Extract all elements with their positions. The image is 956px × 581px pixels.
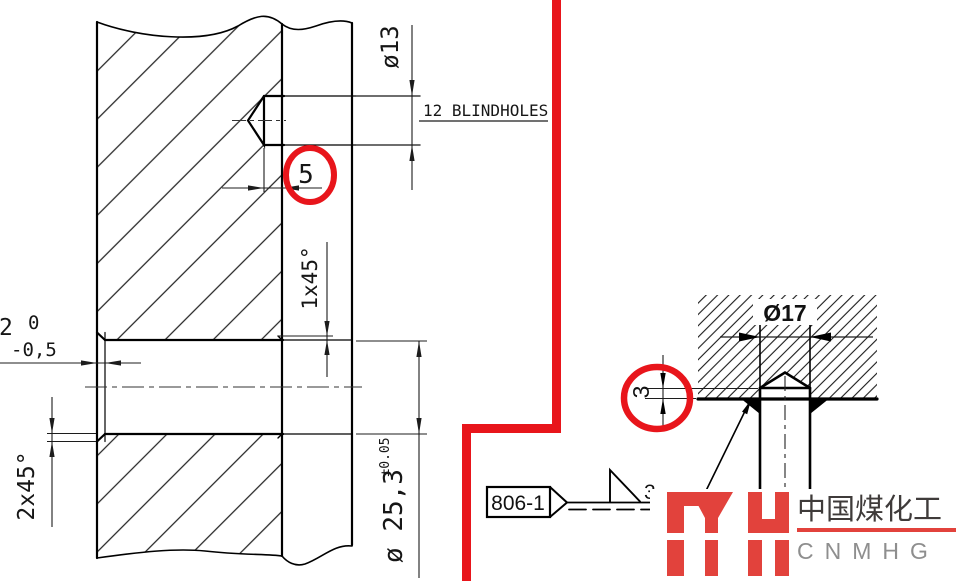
arrowhead [105,360,121,365]
protrusion-height-label: 3 [628,386,654,399]
weld-detail-view: Ø17 3 3 806-1 [487,295,877,517]
engineering-drawing: ø13 12 BLINDHOLES 5 1x45° 2 0 -0, [0,0,956,581]
counterbore-depth-label: 2 [0,315,13,341]
arrowhead [81,360,97,365]
leader-line [700,405,748,503]
arrowhead [409,80,414,96]
tag-pointer [550,487,567,517]
arrowhead [409,145,414,161]
arrowhead [324,340,329,355]
bore-diameter-label: ø 25,3 [379,469,409,563]
arrowhead [416,341,421,357]
fillet-weld-symbol-triangle [610,470,640,502]
watermark-company-en: CNMHG [797,538,939,564]
bore-tolerance-label: ±0.05 [378,437,393,476]
dimension-left-chamfer [47,397,96,527]
arrowhead [416,418,421,434]
hole-diameter-label: ø13 [376,25,404,68]
watermark-underline [797,528,956,532]
arrowhead [49,418,54,434]
blindholes-note-text: 12 BLINDHOLES [423,101,548,120]
blindholes-note: 12 BLINDHOLES [419,101,548,121]
section-hatch [97,16,282,558]
counterbore-tol-upper: 0 [28,312,39,334]
hole-depth-label: 5 [298,160,314,190]
arrowhead [324,321,329,336]
arrowhead [660,399,665,415]
watermark-company-cn: 中国煤化工 [797,493,942,526]
counterbore-tol-lower: -0,5 [11,339,57,361]
detail-diameter-label: Ø17 [763,300,806,326]
left-chamfer-label: 2x45° [14,451,40,520]
arrowhead [49,442,54,458]
fillet-weld-right [810,400,828,415]
right-chamfer-label: 1x45° [298,246,322,309]
weld-process-tag: 806-1 [487,487,567,517]
watermark-logo: 中国煤化工 CNMHG [650,489,956,581]
arrowhead [660,373,665,389]
engineering-drawing-page: ø13 12 BLINDHOLES 5 1x45° 2 0 -0, [0,0,956,581]
blind-hole [248,96,420,145]
weld-process-tag-label: 806-1 [491,492,545,515]
